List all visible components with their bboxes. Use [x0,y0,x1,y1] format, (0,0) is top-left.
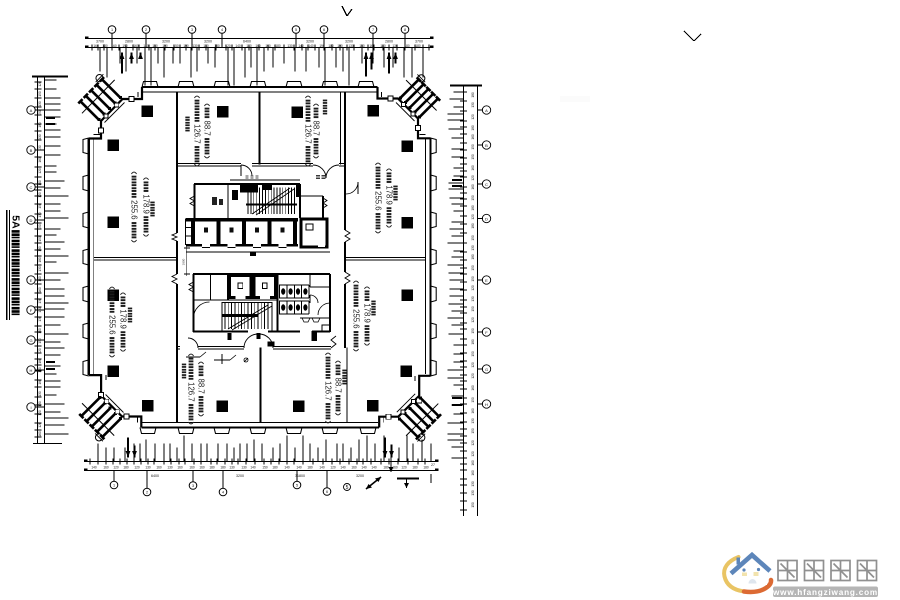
svg-text:120: 120 [401,465,407,469]
svg-text:180: 180 [471,339,475,345]
svg-text:190: 190 [183,44,189,48]
svg-text:G: G [29,338,32,343]
svg-text:120: 120 [38,168,42,174]
svg-text:160: 160 [133,44,139,48]
svg-text:H: H [30,368,33,373]
svg-text:180: 180 [471,254,475,260]
svg-text:120: 120 [225,44,231,48]
svg-text:150: 150 [471,306,475,312]
svg-text:178.9: 178.9 [385,185,394,205]
svg-text:160: 160 [189,465,195,469]
svg-text:150: 150 [471,265,475,271]
svg-text:180: 180 [471,223,475,229]
svg-text:130: 130 [38,101,42,107]
svg-text:140: 140 [250,465,256,469]
svg-text:H: H [485,402,488,407]
svg-text:160: 160 [199,465,205,469]
svg-text:150: 150 [471,154,475,160]
svg-text:130: 130 [471,490,475,496]
svg-text:160: 160 [471,408,475,414]
svg-text:3200: 3200 [306,39,314,43]
svg-text:150: 150 [471,428,475,434]
svg-text:120: 120 [38,81,42,87]
svg-text:3: 3 [191,28,193,32]
svg-text:160: 160 [265,44,271,48]
svg-text:I: I [30,405,31,410]
svg-text:A: A [30,108,33,113]
svg-text:130: 130 [145,465,151,469]
svg-text:180: 180 [471,205,475,211]
svg-text:3200: 3200 [345,39,353,43]
svg-text:120: 120 [38,422,42,428]
svg-text:120: 120 [134,465,140,469]
svg-text:120: 120 [471,362,475,368]
svg-text:180: 180 [214,44,220,48]
svg-text:178.9: 178.9 [119,309,128,329]
svg-text:130: 130 [392,44,398,48]
svg-text:140: 140 [284,465,290,469]
svg-text:180: 180 [123,465,129,469]
svg-text:180: 180 [38,246,42,252]
svg-text:150: 150 [471,328,475,334]
svg-text:160: 160 [93,44,99,48]
svg-text:5: 5 [296,484,298,488]
svg-text:130: 130 [471,245,475,251]
svg-text:2: 2 [145,28,147,32]
svg-text:2: 2 [146,491,148,495]
svg-text:140: 140 [319,465,325,469]
svg-text:150: 150 [471,397,475,403]
svg-text:180: 180 [220,465,226,469]
svg-text:140: 140 [296,465,302,469]
svg-text:130: 130 [192,44,198,48]
svg-text:A: A [485,108,488,113]
svg-text:4: 4 [222,491,224,495]
svg-text:3700: 3700 [96,39,104,43]
svg-text:180: 180 [38,122,42,128]
svg-text:160: 160 [471,165,475,171]
svg-text:5: 5 [295,28,297,32]
svg-text:150: 150 [471,195,475,201]
svg-text:160: 160 [38,157,42,163]
svg-text:G: G [485,367,488,372]
svg-text:120: 120 [471,285,475,291]
svg-text:150: 150 [173,44,179,48]
svg-text:150: 150 [471,144,475,150]
svg-text:150: 150 [38,236,42,242]
svg-text:120: 120 [38,410,42,416]
svg-text:126.7: 126.7 [304,124,313,144]
svg-text:255.6: 255.6 [374,191,383,211]
svg-text:160: 160 [38,431,42,437]
svg-text:140: 140 [371,465,377,469]
svg-text:180: 180 [415,44,421,48]
svg-text:120: 120 [471,214,475,220]
svg-text:150: 150 [471,502,475,508]
svg-text:130: 130 [471,418,475,424]
svg-text:1: 1 [111,28,113,32]
svg-text:160: 160 [38,180,42,186]
svg-text:4: 4 [221,28,223,32]
svg-text:6400: 6400 [151,474,159,478]
svg-text:160: 160 [255,44,261,48]
svg-text:180: 180 [38,379,42,385]
svg-text:180: 180 [275,44,281,48]
svg-text:180: 180 [307,465,313,469]
svg-text:150: 150 [262,465,268,469]
svg-text:150: 150 [471,351,475,357]
svg-text:140: 140 [308,44,314,48]
svg-text:140: 140 [340,465,346,469]
svg-text:120: 120 [330,465,336,469]
svg-text:180: 180 [209,465,215,469]
svg-text:140: 140 [361,465,367,469]
svg-text:130: 130 [38,298,42,304]
svg-text:D: D [30,218,33,223]
svg-text:1800: 1800 [182,258,186,265]
svg-text:180: 180 [471,125,475,131]
svg-text:120: 120 [471,175,475,181]
svg-text:5A: 5A [10,215,22,229]
svg-text:190: 190 [162,44,168,48]
svg-text:6400: 6400 [243,39,251,43]
svg-text:130: 130 [471,481,475,487]
svg-text:178.9: 178.9 [363,303,372,323]
svg-text:120: 120 [471,440,475,446]
svg-text:130: 130 [38,401,42,407]
svg-text:120: 120 [38,348,42,354]
svg-text:3700: 3700 [415,39,423,43]
svg-text:140: 140 [91,465,97,469]
svg-text:B: B [485,143,488,148]
svg-text:130: 130 [241,465,247,469]
svg-text:160: 160 [369,44,375,48]
svg-text:E: E [485,278,488,283]
svg-text:3200: 3200 [236,474,244,478]
svg-text:150: 150 [471,235,475,241]
svg-text:180: 180 [38,358,42,364]
svg-text:E: E [30,278,33,283]
svg-text:180: 180 [423,465,429,469]
svg-text:120: 120 [113,465,119,469]
svg-text:180: 180 [38,257,42,263]
svg-text:120: 120 [471,451,475,457]
svg-text:130: 130 [38,391,42,397]
svg-text:160: 160 [351,465,357,469]
svg-text:8: 8 [404,28,406,32]
svg-text:F: F [30,308,33,313]
svg-text:130: 130 [38,266,42,272]
svg-text:130: 130 [167,465,173,469]
svg-text:255.6: 255.6 [352,309,361,329]
svg-text:160: 160 [471,184,475,190]
svg-text:190: 190 [337,44,343,48]
svg-text:2800: 2800 [385,39,393,43]
svg-text:190: 190 [122,44,128,48]
svg-text:160: 160 [38,276,42,282]
svg-text:150: 150 [38,91,42,97]
svg-text:140: 140 [235,44,241,48]
svg-text:140: 140 [298,44,304,48]
svg-text:160: 160 [471,134,475,140]
svg-text:130: 130 [38,212,42,218]
svg-text:150: 150 [38,224,42,230]
svg-text:31800: 31800 [295,474,305,478]
svg-text:150: 150 [152,44,158,48]
svg-text:130: 130 [471,296,475,302]
svg-text:160: 160 [177,465,183,469]
svg-text:88.7: 88.7 [312,121,321,136]
svg-text:255.6: 255.6 [130,200,139,220]
svg-text:126.7: 126.7 [324,381,333,401]
svg-text:255.6: 255.6 [108,315,117,335]
svg-text:140: 140 [246,44,252,48]
svg-text:180: 180 [383,465,389,469]
svg-text:3200: 3200 [356,474,364,478]
svg-text:C: C [485,182,488,187]
svg-text:120: 120 [471,114,475,120]
svg-text:160: 160 [38,328,42,334]
svg-text:F: F [485,330,488,335]
svg-text:160: 160 [38,287,42,293]
svg-text:7: 7 [372,28,374,32]
svg-text:130: 130 [38,134,42,140]
svg-text:160: 160 [471,460,475,466]
svg-text:180: 180 [328,44,334,48]
svg-text:120: 120 [471,317,475,323]
svg-text:2800: 2800 [125,39,133,43]
svg-text:3200: 3200 [162,39,170,43]
svg-text:126.7: 126.7 [193,124,202,144]
svg-text:130: 130 [229,465,235,469]
svg-text:130: 130 [471,102,475,108]
svg-text:180: 180 [272,465,278,469]
svg-text:178.9: 178.9 [142,194,151,214]
svg-text:150: 150 [359,44,365,48]
svg-text:130: 130 [348,44,354,48]
svg-text:160: 160 [471,385,475,391]
svg-text:88.7: 88.7 [197,379,206,394]
svg-text:www.hfangziwang.com: www.hfangziwang.com [772,588,878,597]
svg-text:160: 160 [103,465,109,469]
svg-text:150: 150 [38,338,42,344]
svg-text:120: 120 [471,373,475,379]
svg-text:3: 3 [192,484,194,488]
svg-text:180: 180 [380,44,386,48]
svg-text:160: 160 [471,470,475,476]
svg-text:130: 130 [203,44,209,48]
svg-text:150: 150 [38,110,42,116]
svg-text:130: 130 [38,316,42,322]
svg-text:120: 120 [38,192,42,198]
svg-text:3200: 3200 [204,39,212,43]
svg-text:88.7: 88.7 [203,121,212,136]
svg-text:126.7: 126.7 [187,382,196,402]
svg-text:150: 150 [38,203,42,209]
svg-text:130: 130 [102,44,108,48]
svg-text:C: C [30,185,33,190]
svg-text:88.7: 88.7 [334,378,343,393]
svg-text:1: 1 [113,484,115,488]
svg-text:180: 180 [412,465,418,469]
svg-text:6: 6 [323,28,325,32]
svg-text:6: 6 [326,490,328,494]
svg-text:160: 160 [156,465,162,469]
svg-text:150: 150 [471,276,475,282]
svg-text:180: 180 [471,92,475,98]
svg-text:130: 130 [287,44,293,48]
svg-text:D: D [485,216,488,221]
svg-text:27: 27 [431,463,435,467]
svg-text:B: B [30,148,33,153]
